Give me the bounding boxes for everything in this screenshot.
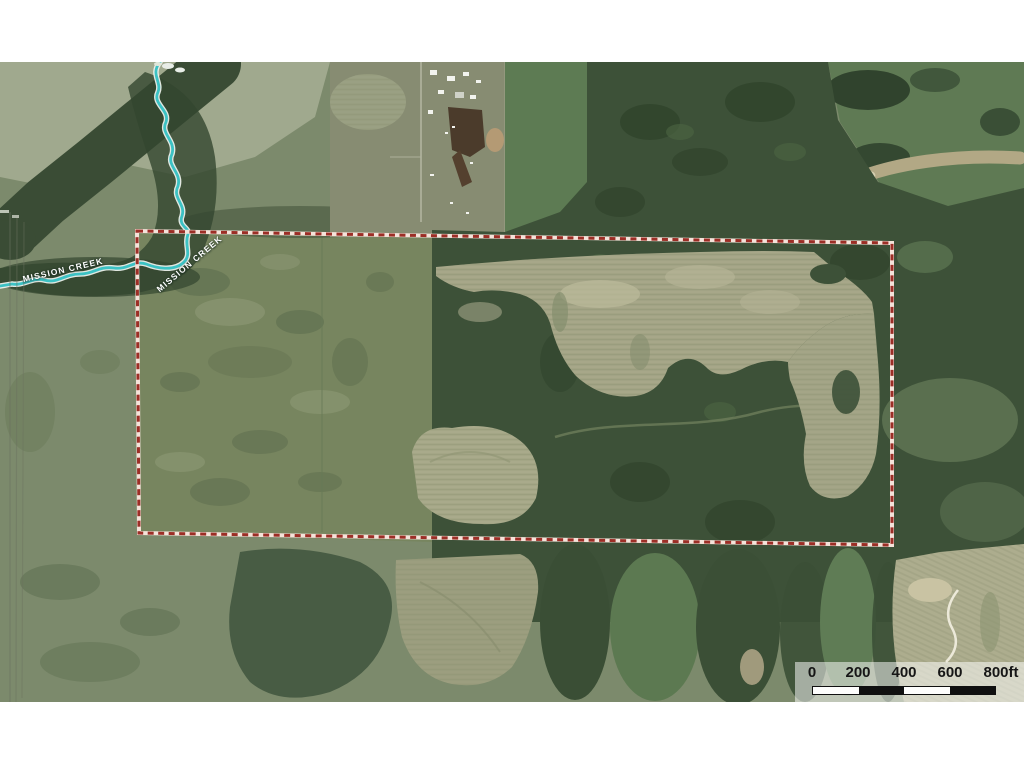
scale-bar-segment: [859, 687, 905, 694]
cultivated-field-small: [412, 426, 538, 524]
scale-bar-segment: [813, 687, 859, 694]
scale-tick-label: 800ft: [983, 664, 1018, 681]
scale-tick-label: 200: [845, 664, 870, 681]
scale-tick-label: 400: [891, 664, 916, 681]
page: MISSION CREEK MISSION CREEK 0 200 400 60…: [0, 0, 1024, 768]
terrain-graphic: [0, 62, 1024, 702]
aerial-photo: MISSION CREEK MISSION CREEK 0 200 400 60…: [0, 62, 1024, 702]
scale-bar-segment: [950, 687, 996, 694]
scale-bar-gauge: [812, 686, 996, 695]
scale-bar: 0 200 400 600 800ft: [795, 662, 1024, 702]
scale-bar-segment: [904, 687, 950, 694]
farmstead: [330, 62, 505, 237]
scale-tick-label: 0: [808, 664, 816, 681]
scale-tick-label: 600: [937, 664, 962, 681]
